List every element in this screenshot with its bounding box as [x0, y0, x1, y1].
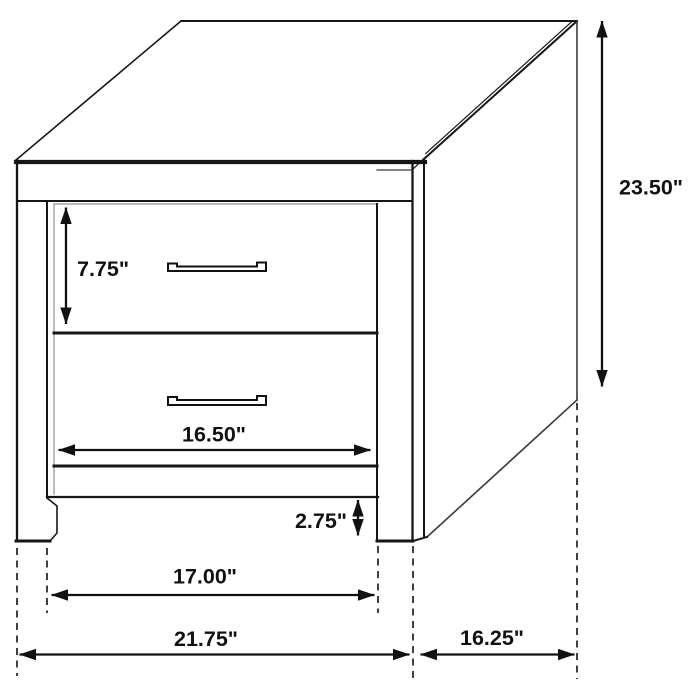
top-face [16, 21, 577, 162]
overall-height-label: 23.50" [619, 176, 683, 200]
overall-depth-dimension: 16.25" [421, 626, 575, 655]
top-drawer-handle [168, 263, 266, 272]
top-right-edge-outer [424, 21, 577, 159]
base-rail-height-label: 2.75" [295, 509, 347, 533]
nightstand-drawing [16, 21, 577, 541]
front-frame [17, 159, 424, 542]
top-drawer-height-label: 7.75" [77, 257, 129, 281]
diagram-canvas: 23.50" 7.75" 16.50" 2.75" 17.00" 21.75" … [0, 0, 700, 700]
top-left-edge [16, 21, 181, 160]
base-rail-height-dimension: 2.75" [295, 500, 358, 536]
overall-width-label: 21.75" [174, 627, 238, 651]
side-bottom-edge [427, 400, 577, 537]
overall-height-dimension: 23.50" [602, 21, 683, 387]
leg-span-dimension: 17.00" [52, 565, 375, 596]
dimension-annotations: 23.50" 7.75" 16.50" 2.75" 17.00" 21.75" … [20, 21, 684, 655]
bottom-drawer-handle [168, 396, 266, 405]
legs [16, 498, 427, 541]
top-drawer-height-dimension: 7.75" [66, 208, 129, 325]
leg-span-label: 17.00" [173, 565, 237, 589]
drawer-width-dimension: 16.50" [59, 423, 371, 451]
top-right-edge-inner [426, 22, 572, 153]
drawer-width-label: 16.50" [182, 423, 246, 447]
overall-width-dimension: 21.75" [20, 627, 410, 655]
nightstand-dimension-diagram: 23.50" 7.75" 16.50" 2.75" 17.00" 21.75" … [0, 0, 700, 700]
side-panel [424, 21, 577, 537]
left-leg-side-face [47, 498, 57, 541]
right-leg-corner [413, 537, 427, 541]
overall-depth-label: 16.25" [460, 626, 524, 650]
